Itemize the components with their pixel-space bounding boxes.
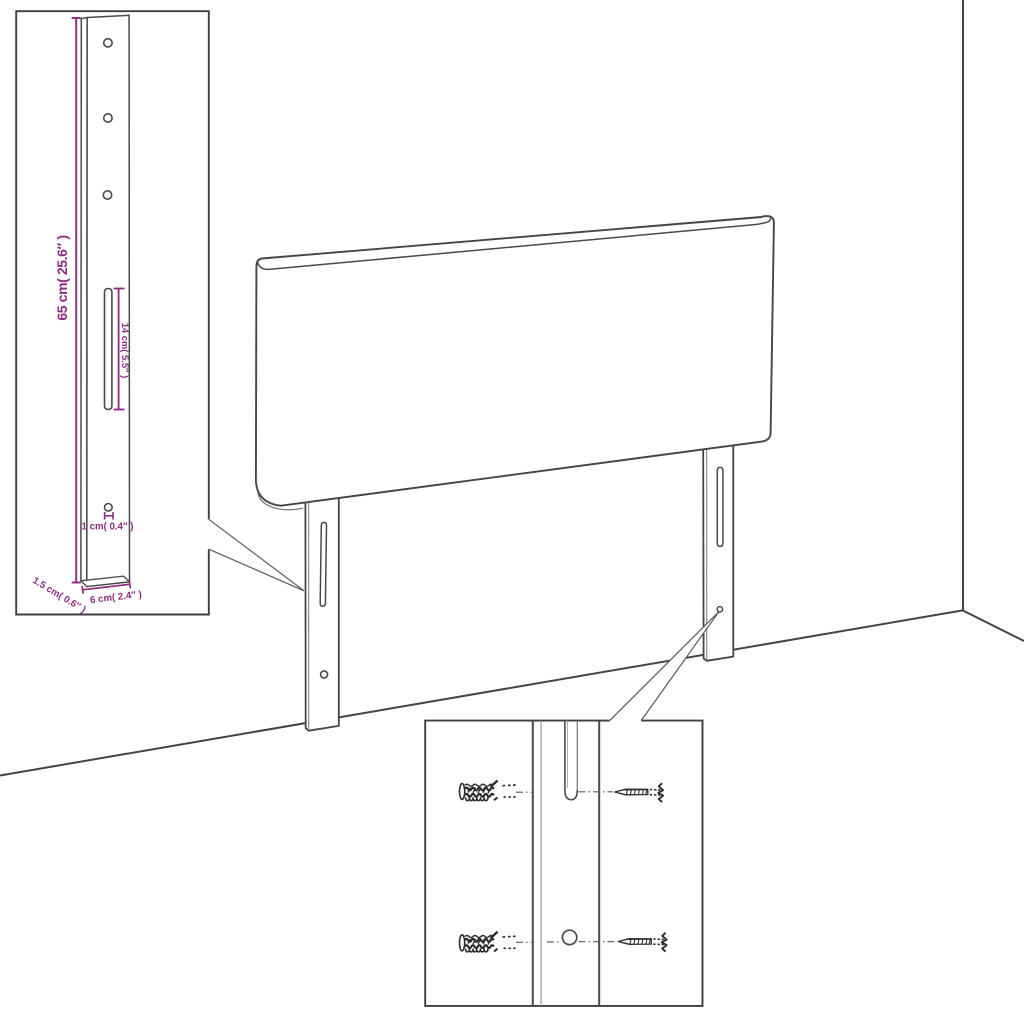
svg-text:65 cm( 25.6″ ): 65 cm( 25.6″ )	[54, 235, 70, 320]
svg-text:1 cm( 0.4″ ): 1 cm( 0.4″ )	[81, 522, 133, 533]
svg-text:14 cm( 5.5″ ): 14 cm( 5.5″ )	[120, 323, 131, 379]
